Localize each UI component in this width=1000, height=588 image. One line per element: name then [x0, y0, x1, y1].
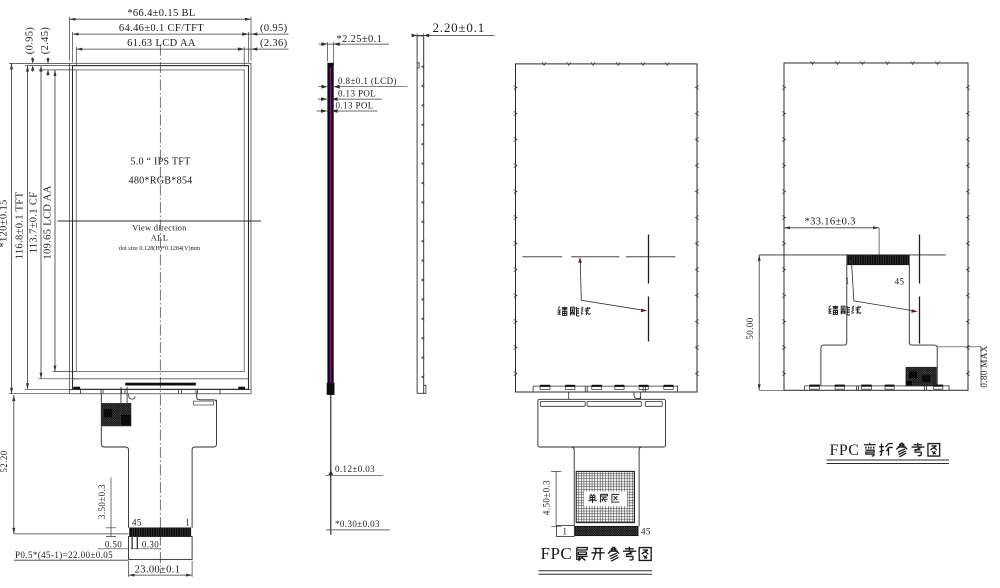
svg-text:*0.30±0.03: *0.30±0.03 — [335, 519, 380, 529]
svg-text:23.00±0.1: 23.00±0.1 — [135, 564, 181, 575]
svg-text:5.0 “ IPS TFT: 5.0 “ IPS TFT — [130, 157, 191, 168]
svg-text:*66.4±0.15 BL: *66.4±0.15 BL — [127, 8, 195, 19]
svg-text:2.20±0.1: 2.20±0.1 — [433, 20, 486, 35]
svg-text:0.50: 0.50 — [105, 539, 122, 549]
svg-text:1: 1 — [563, 527, 568, 537]
svg-text:ALL: ALL — [151, 233, 168, 243]
svg-text:P0.5*(45-1)=22.00±0.05: P0.5*(45-1)=22.00±0.05 — [15, 550, 113, 560]
svg-text:113.7±0.1 CF: 113.7±0.1 CF — [29, 192, 40, 254]
svg-text:0.30: 0.30 — [142, 539, 159, 549]
svg-text:*33.16±0.3: *33.16±0.3 — [805, 217, 856, 228]
svg-text:0.80 MAX: 0.80 MAX — [979, 345, 989, 387]
svg-text:0.8±0.1 (LCD): 0.8±0.1 (LCD) — [338, 76, 397, 86]
svg-text:52.20: 52.20 — [0, 450, 9, 472]
svg-text:(0.95): (0.95) — [25, 27, 36, 55]
svg-text:45: 45 — [132, 518, 142, 528]
svg-text:dot size 0.128(H)*0.1284(V)mm: dot size 0.128(H)*0.1284(V)mm — [119, 245, 201, 252]
svg-text:480*RGB*854: 480*RGB*854 — [129, 176, 193, 187]
svg-text:45: 45 — [895, 277, 905, 287]
svg-text:45: 45 — [641, 527, 651, 537]
svg-text:*2.25±0.1: *2.25±0.1 — [337, 34, 383, 45]
svg-text:61.63 LCD AA: 61.63 LCD AA — [127, 38, 196, 49]
svg-text:(2.45): (2.45) — [40, 27, 51, 55]
svg-text:3.50±0.3: 3.50±0.3 — [97, 484, 107, 519]
svg-text:50.00: 50.00 — [745, 317, 755, 339]
svg-text:View direction: View direction — [132, 223, 187, 233]
svg-text:64.46±0.1 CF/TFT: 64.46±0.1 CF/TFT — [119, 23, 204, 34]
svg-text:109.65 LCD AA: 109.65 LCD AA — [43, 185, 54, 259]
svg-text:(2.36): (2.36) — [260, 38, 288, 49]
svg-text:1: 1 — [185, 518, 190, 528]
svg-text:1: 1 — [845, 276, 850, 286]
svg-text:4.50±0.3: 4.50±0.3 — [542, 480, 552, 515]
svg-text:116.8±0.1 TFT: 116.8±0.1 TFT — [15, 191, 26, 259]
svg-text:(0.95): (0.95) — [260, 23, 288, 34]
svg-text:0.12±0.03: 0.12±0.03 — [335, 464, 375, 474]
svg-text:0.13 POL: 0.13 POL — [336, 101, 374, 111]
svg-text:FPC: FPC — [830, 442, 860, 459]
svg-text:FPC: FPC — [541, 544, 573, 563]
svg-text:0.13 POL: 0.13 POL — [338, 89, 376, 99]
svg-text:*120±0.15: *120±0.15 — [0, 199, 9, 247]
